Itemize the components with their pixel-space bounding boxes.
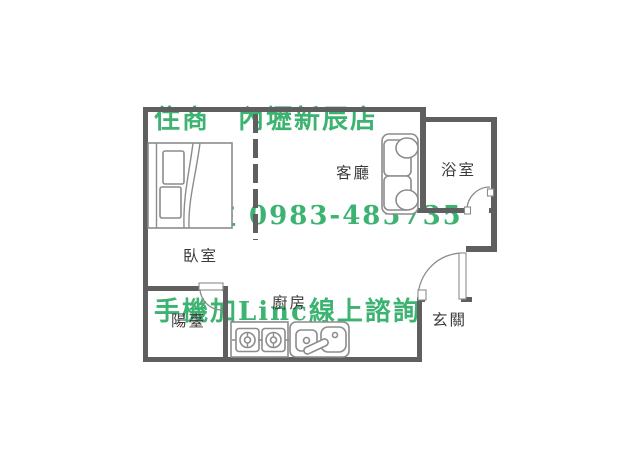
room-label-kitchen: 廚房 — [272, 293, 307, 312]
sink-icon — [290, 322, 349, 357]
room-label-bedroom: 臥室 — [183, 247, 218, 265]
room-label-bathroom: 浴室 — [441, 161, 476, 179]
floorplan-page: 住商 內壢新辰店 楊先生 0983-485735 手機加Linc線上諮詢 — [0, 0, 638, 460]
room-label-balcony: 陽臺 — [171, 312, 206, 330]
entrance-door-swing-icon — [418, 253, 466, 300]
sofa-icon — [382, 134, 418, 214]
room-label-living-room: 客廳 — [336, 163, 371, 182]
balcony-door-swing-icon — [199, 283, 223, 310]
floorplan-drawing: 臥室 客廳 浴室 廚房 玄關 陽臺 — [0, 0, 638, 460]
stove-icon — [231, 322, 289, 357]
room-label-entrance: 玄關 — [432, 311, 467, 329]
bed-icon — [148, 143, 232, 228]
